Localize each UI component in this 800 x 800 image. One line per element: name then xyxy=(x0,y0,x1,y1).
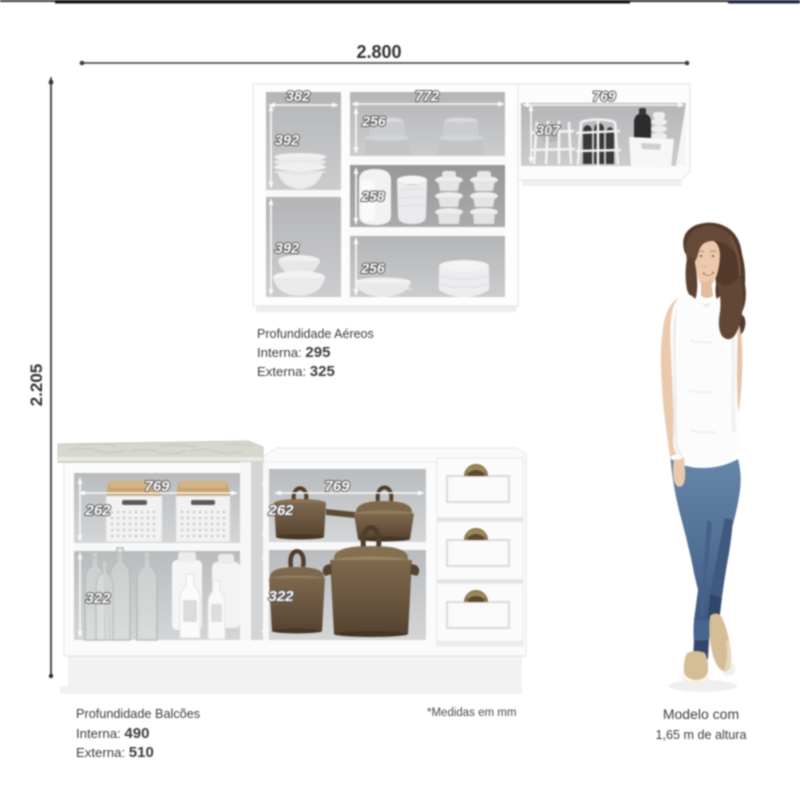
svg-text:262: 262 xyxy=(267,502,294,519)
svg-text:Profundidade Balcões: Profundidade Balcões xyxy=(76,707,200,721)
svg-text:322: 322 xyxy=(268,588,294,605)
svg-text:769: 769 xyxy=(144,478,170,495)
svg-text:2.205: 2.205 xyxy=(27,364,46,407)
svg-text:Profundidade Aéreos: Profundidade Aéreos xyxy=(257,327,374,341)
svg-text:256: 256 xyxy=(360,260,385,276)
svg-text:*Medidas em mm: *Medidas em mm xyxy=(427,707,516,719)
svg-text:772: 772 xyxy=(415,89,439,105)
svg-text:Interna: 490: Interna: 490 xyxy=(76,725,149,742)
svg-text:769: 769 xyxy=(324,478,350,495)
svg-text:258: 258 xyxy=(360,188,385,204)
svg-text:2.800: 2.800 xyxy=(356,42,401,62)
svg-text:769: 769 xyxy=(592,88,616,104)
svg-text:382: 382 xyxy=(286,89,310,105)
svg-text:322: 322 xyxy=(85,590,111,607)
svg-text:262: 262 xyxy=(84,502,111,519)
svg-text:Externa: 510: Externa: 510 xyxy=(76,744,154,761)
svg-text:1,65 m de altura: 1,65 m de altura xyxy=(655,728,746,742)
svg-text:392: 392 xyxy=(275,133,299,149)
svg-text:Externa: 325: Externa: 325 xyxy=(257,363,335,380)
svg-text:307: 307 xyxy=(536,122,561,138)
svg-text:256: 256 xyxy=(361,113,386,129)
svg-text:392: 392 xyxy=(275,241,299,257)
svg-text:Modelo com: Modelo com xyxy=(663,706,739,722)
svg-text:Interna: 295: Interna: 295 xyxy=(257,344,330,361)
